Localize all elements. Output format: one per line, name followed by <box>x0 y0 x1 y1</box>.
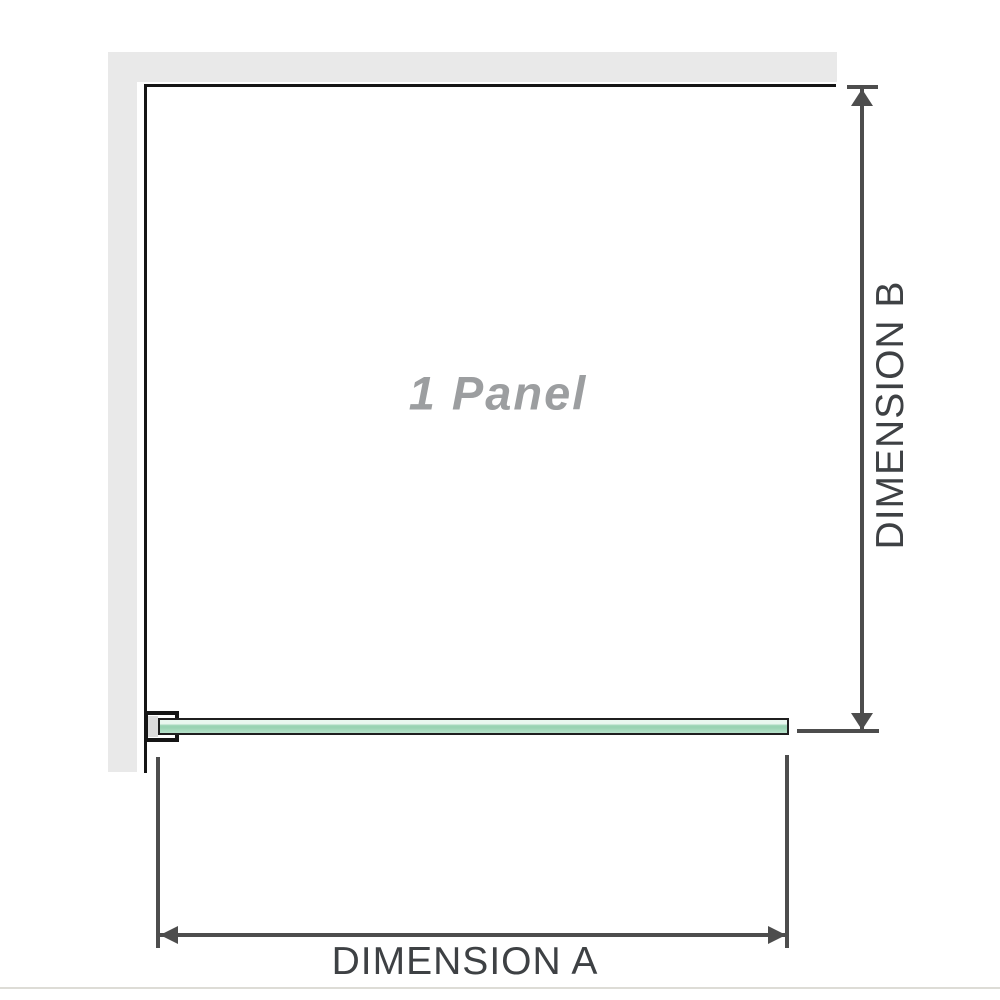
panel-count-label: 1 Panel <box>409 366 588 421</box>
dimension-a-right-extension <box>785 755 789 948</box>
dimension-b-line <box>860 88 864 730</box>
panel-outline-left <box>144 84 147 773</box>
glass-panel <box>158 718 789 735</box>
dimension-b-label: DIMENSION B <box>869 281 913 550</box>
dimension-a-line <box>158 933 788 937</box>
arrow-down-icon <box>851 713 873 730</box>
bottom-divider-line <box>0 987 1000 989</box>
wall-top-bar <box>108 52 837 82</box>
wall-left-bar <box>108 52 137 772</box>
panel-dimension-diagram: 1 Panel DIMENSION B DIMENSION A <box>0 0 1000 1000</box>
dimension-b-bottom-tick <box>797 729 879 733</box>
dimension-a-label: DIMENSION A <box>332 940 599 984</box>
arrow-right-icon <box>768 926 786 944</box>
bracket-spacer <box>148 716 158 737</box>
arrow-up-icon <box>851 89 873 106</box>
dimension-a-left-extension <box>156 757 160 948</box>
arrow-left-icon <box>160 926 178 944</box>
panel-outline-top <box>144 84 836 87</box>
